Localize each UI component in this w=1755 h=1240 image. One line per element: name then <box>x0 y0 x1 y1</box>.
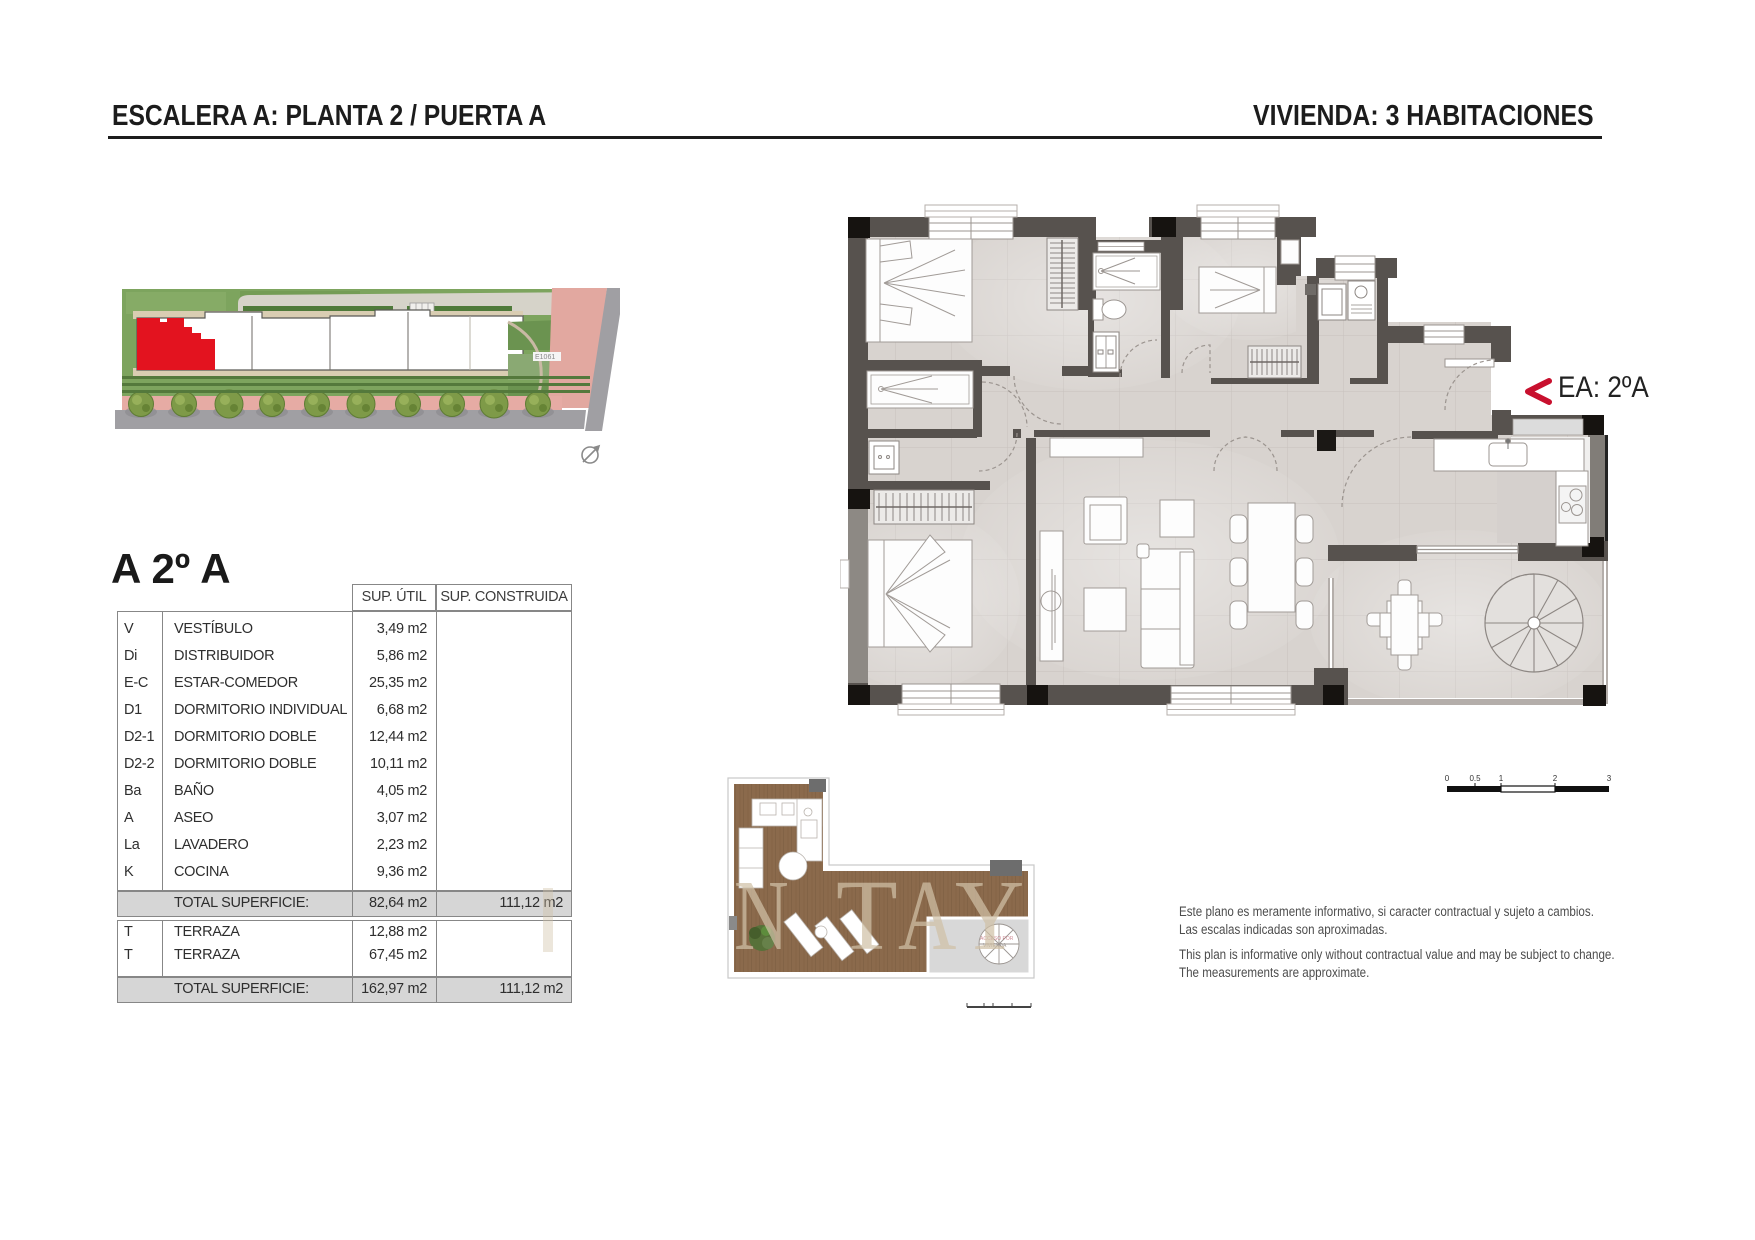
svg-text:ACCESO POR: ACCESO POR <box>980 936 1014 942</box>
svg-text:3: 3 <box>1607 774 1612 783</box>
svg-text:1: 1 <box>1499 774 1504 783</box>
svg-text:2: 2 <box>1553 774 1558 783</box>
svg-text:E1061: E1061 <box>535 354 555 361</box>
svg-text:0: 0 <box>1445 774 1450 783</box>
svg-text:0.5: 0.5 <box>1469 774 1481 783</box>
svg-text:VIVIENDA: VIVIENDA <box>983 943 1007 949</box>
